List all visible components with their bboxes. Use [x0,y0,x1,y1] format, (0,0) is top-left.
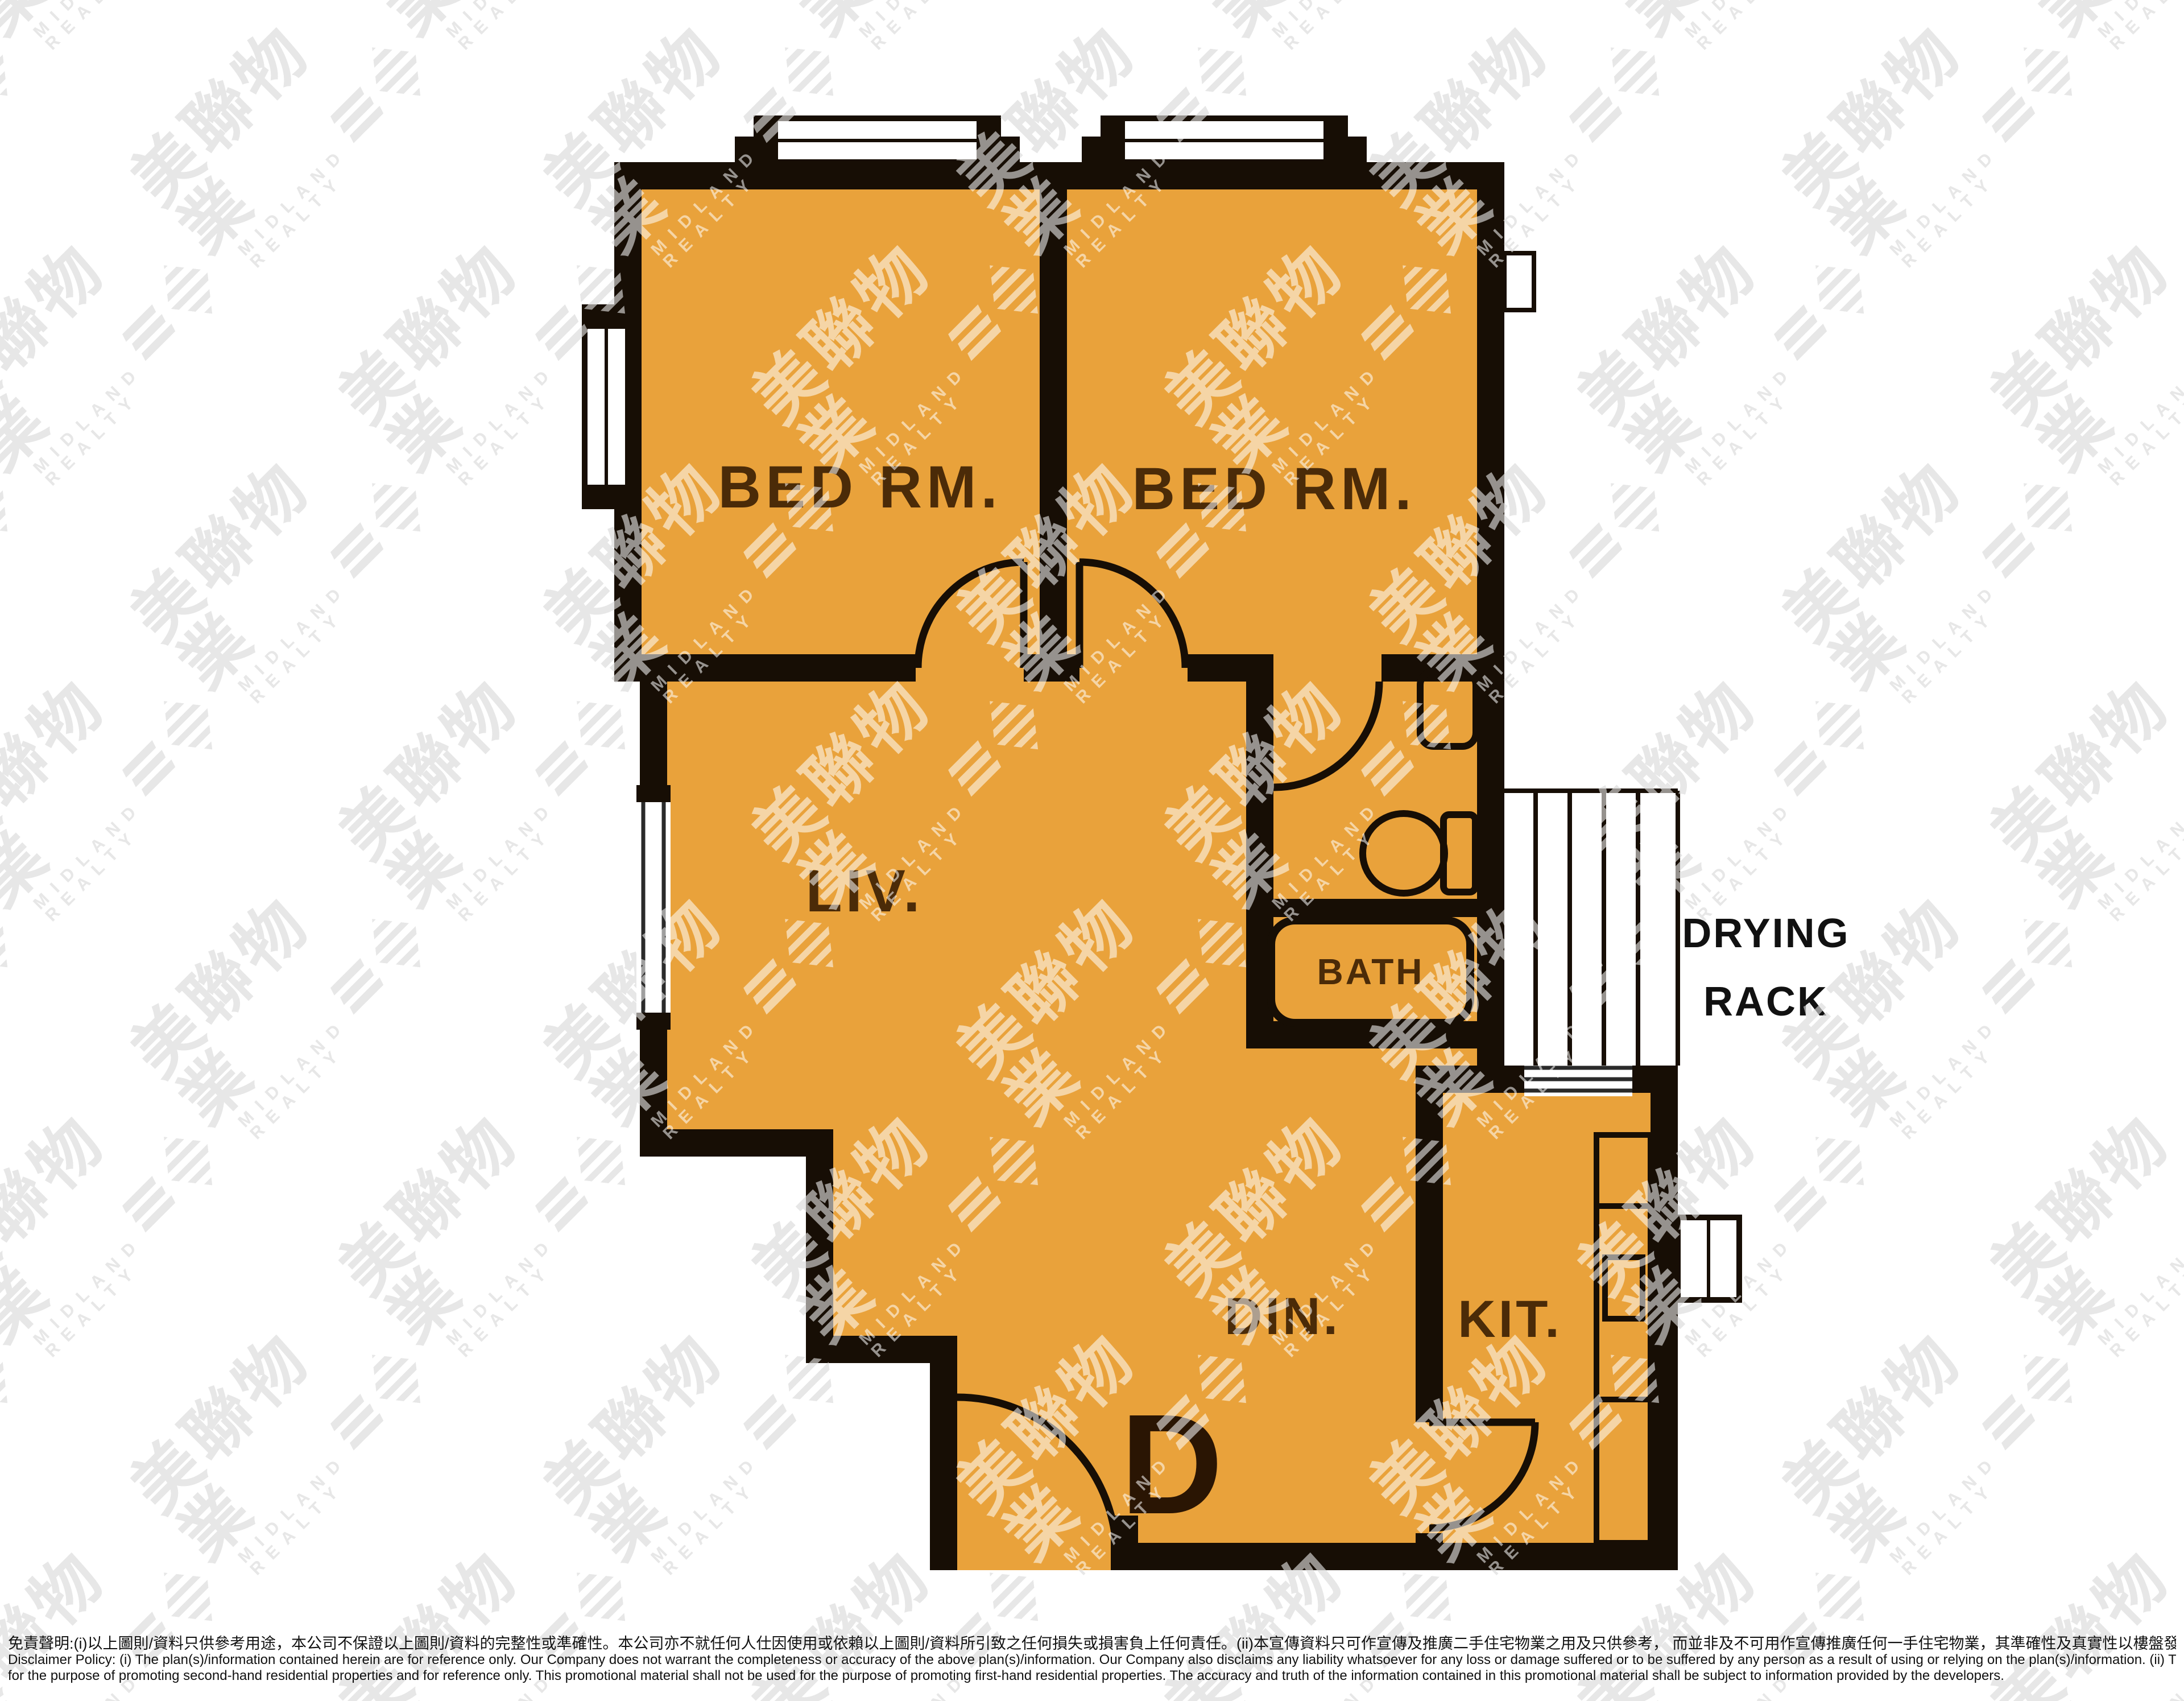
kitchen-label: KIT. [1458,1290,1562,1348]
disclaimer-line-en2: for the purpose of promoting second-hand… [8,1668,2176,1684]
bedroom2-label: BED RM. [1132,456,1416,522]
dining-label: DIN. [1225,1287,1341,1345]
drying-rack-label-line2: RACK [1703,979,1829,1025]
disclaimer: 免責聲明:(i)以上圖則/資料只供參考用途，本公司不保證以上圖則/資料的完整性或… [8,1635,2176,1684]
floor-plan: BED RM. BED RM. LIV. BATH DIN. KIT. D DR… [0,0,2184,1701]
bath-label: BATH [1317,951,1425,992]
drying-rack-label-line1: DRYING [1682,911,1850,956]
drying-rack [1504,791,1678,1066]
bedroom1-label: BED RM. [718,454,1002,521]
disclaimer-line-zh: 免責聲明:(i)以上圖則/資料只供參考用途，本公司不保證以上圖則/資料的完整性或… [8,1635,2176,1652]
unit-letter: D [1120,1385,1223,1543]
screenshot-canvas: 美聯物業MIDLAND REALTY美聯物業MIDLAND REALTY美聯物業… [0,0,2184,1701]
disclaimer-line-en1: Disclaimer Policy: (i) The plan(s)/infor… [8,1652,2176,1668]
living-label: LIV. [806,858,924,924]
